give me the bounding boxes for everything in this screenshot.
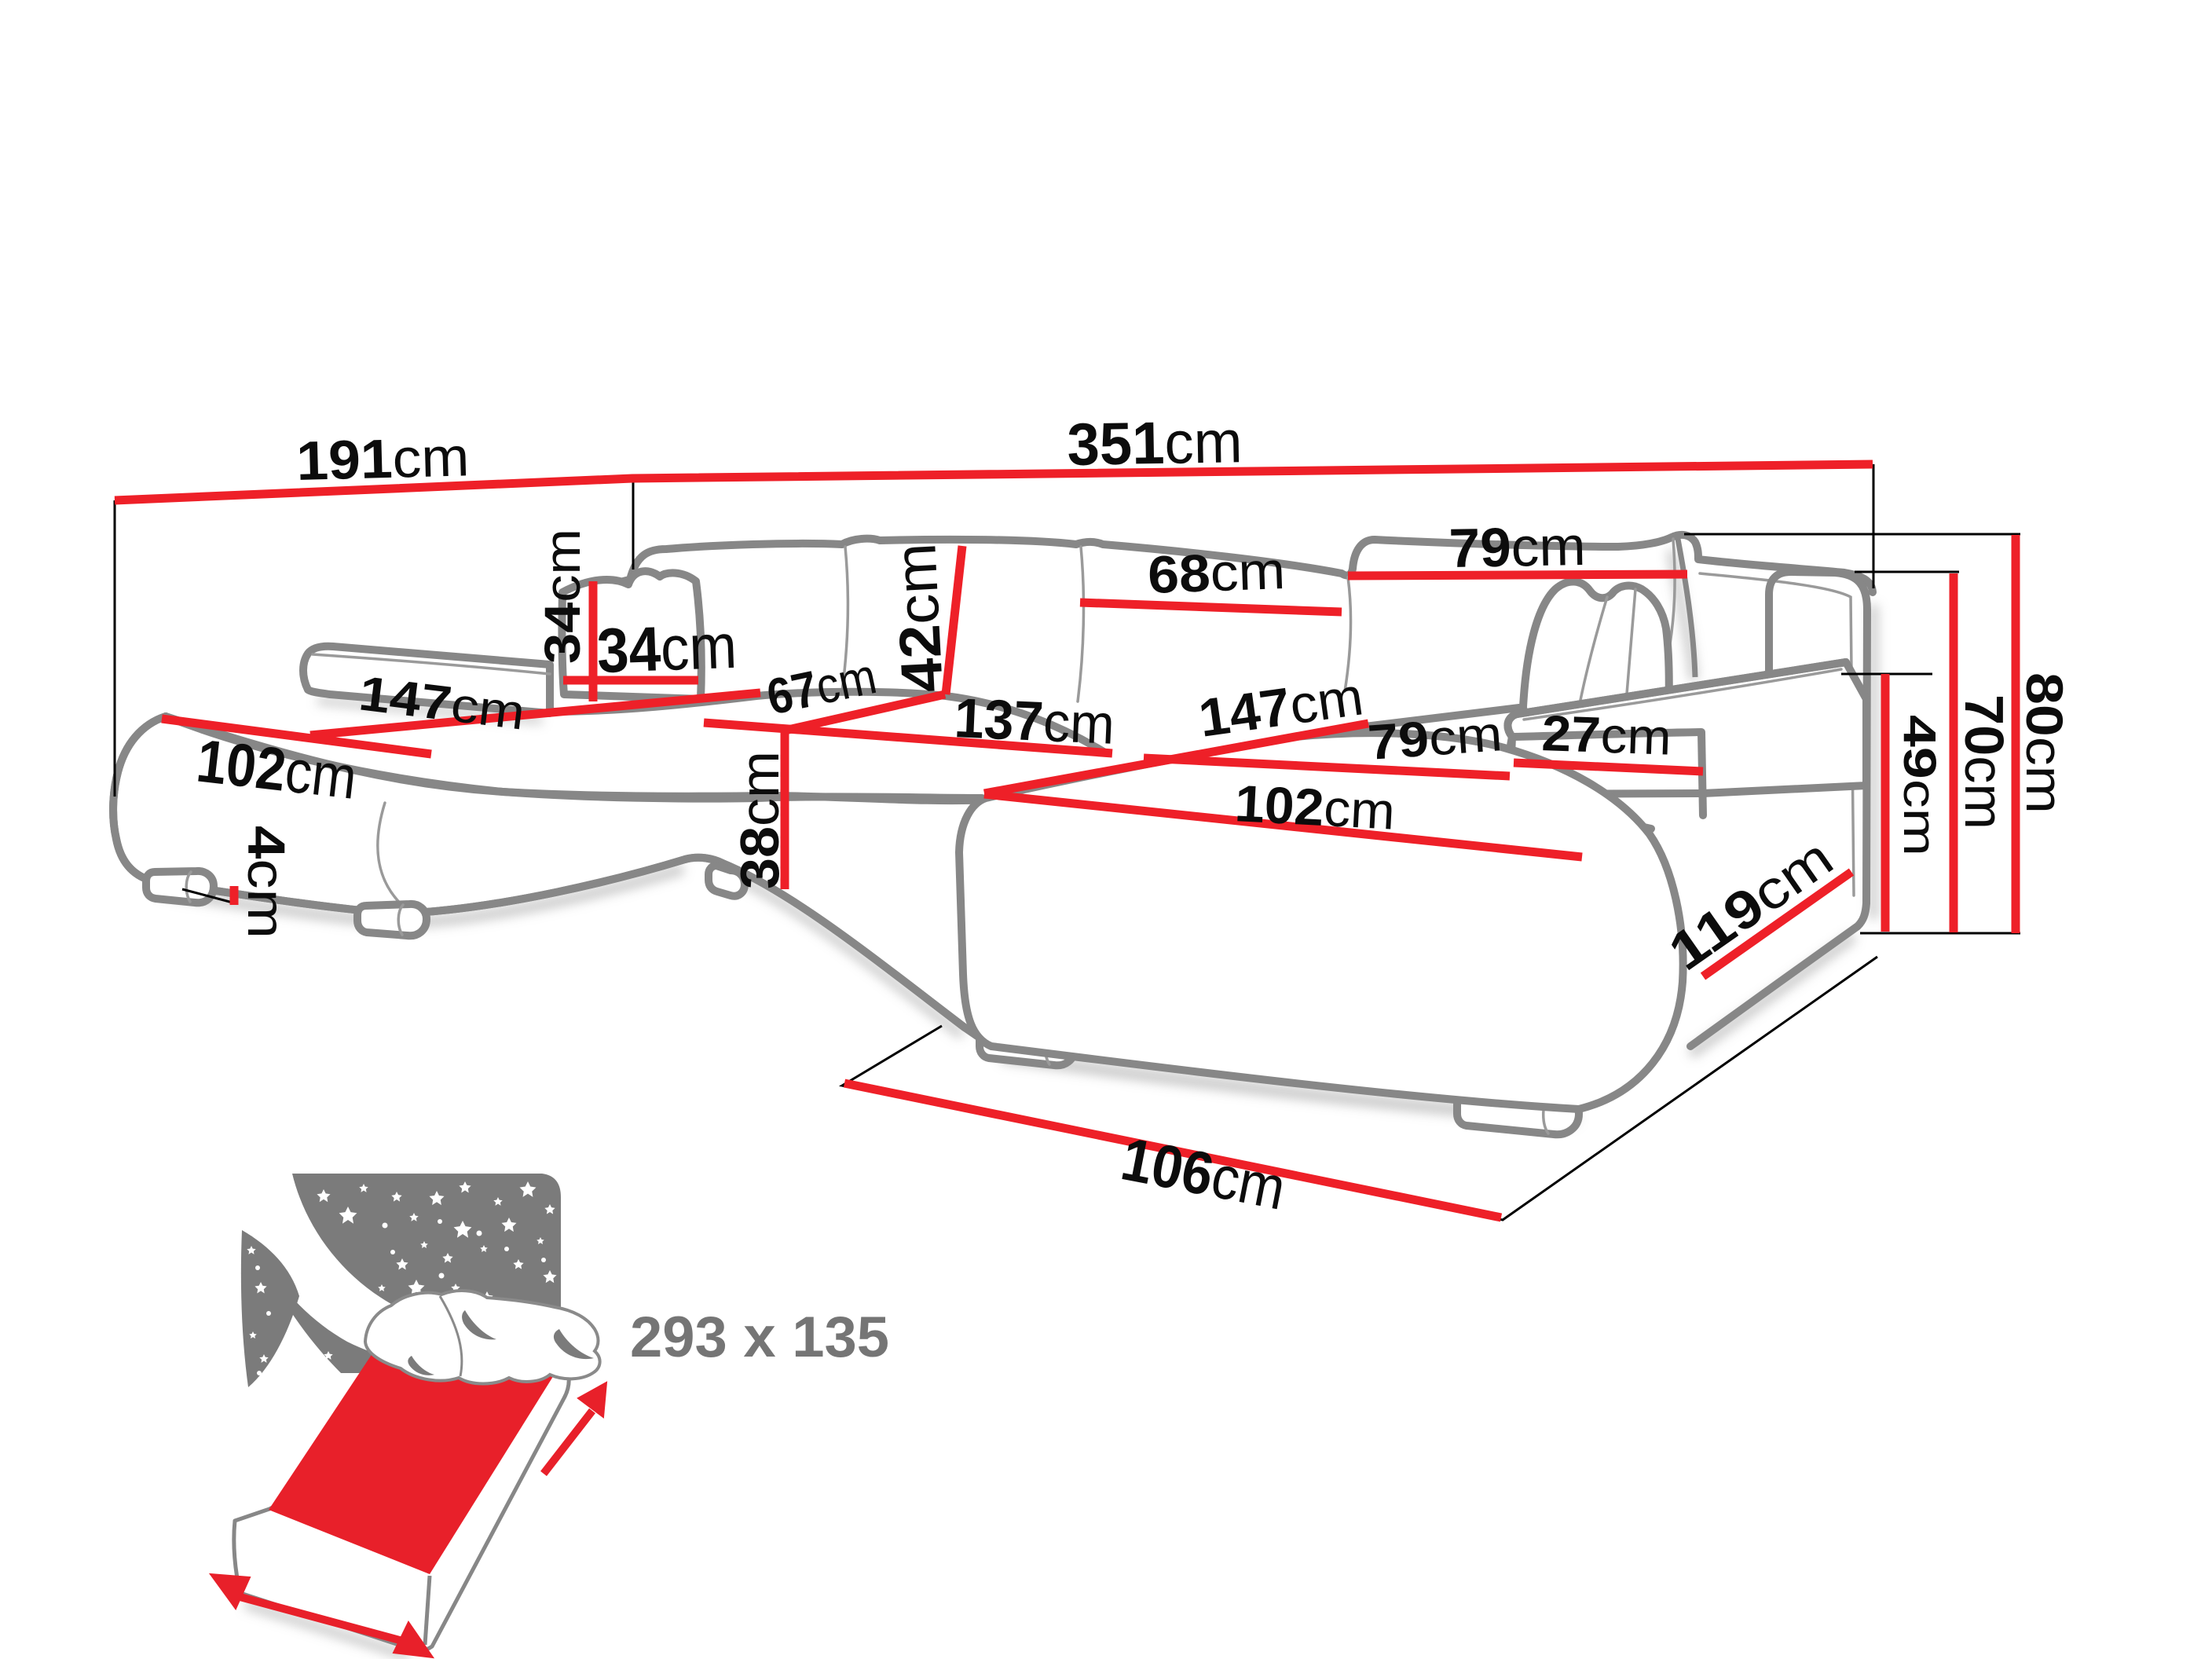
svg-text:42cm: 42cm bbox=[882, 541, 955, 694]
svg-text:4cm: 4cm bbox=[236, 826, 295, 939]
svg-text:34cm: 34cm bbox=[595, 611, 738, 686]
svg-text:106cm: 106cm bbox=[1116, 1125, 1291, 1222]
svg-text:68cm: 68cm bbox=[1147, 541, 1287, 605]
svg-text:79cm: 79cm bbox=[1366, 706, 1503, 771]
svg-text:137cm: 137cm bbox=[953, 687, 1115, 756]
svg-text:79cm: 79cm bbox=[1448, 515, 1586, 579]
svg-text:80cm: 80cm bbox=[2016, 672, 2074, 814]
svg-text:102cm: 102cm bbox=[1233, 774, 1397, 840]
svg-text:34cm: 34cm bbox=[534, 529, 591, 664]
svg-text:293 x 135: 293 x 135 bbox=[630, 1306, 889, 1369]
svg-text:191cm: 191cm bbox=[295, 426, 470, 492]
svg-text:351cm: 351cm bbox=[1067, 408, 1243, 478]
svg-text:49cm: 49cm bbox=[1894, 715, 1945, 856]
svg-text:70cm: 70cm bbox=[1954, 694, 2015, 829]
svg-text:38cm: 38cm bbox=[729, 751, 790, 889]
svg-text:27cm: 27cm bbox=[1541, 705, 1672, 766]
